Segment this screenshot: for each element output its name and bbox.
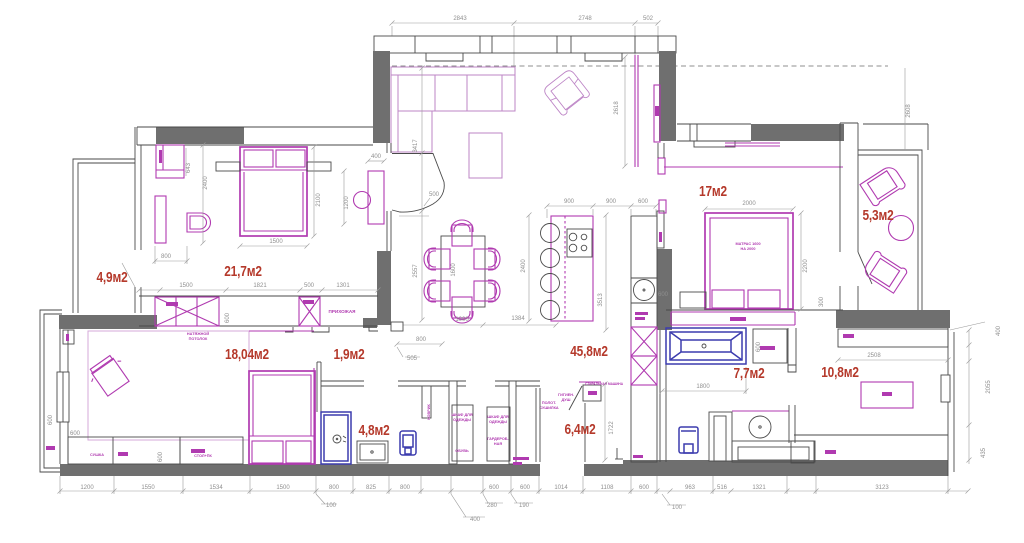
svg-text:2557: 2557: [413, 264, 419, 278]
svg-text:1722: 1722: [609, 421, 615, 435]
svg-text:1500: 1500: [179, 283, 193, 289]
svg-text:400: 400: [996, 325, 1002, 336]
svg-text:ПОЛОТ.: ПОЛОТ.: [542, 401, 556, 405]
svg-text:7,7м2: 7,7м2: [733, 365, 764, 381]
svg-text:600: 600: [638, 199, 649, 205]
svg-text:ШКАФ ДЛЯ: ШКАФ ДЛЯ: [487, 415, 508, 419]
svg-text:2618: 2618: [614, 101, 620, 115]
svg-text:ПРИХОЖАЯ: ПРИХОЖАЯ: [329, 309, 356, 314]
svg-text:1550: 1550: [141, 485, 155, 491]
svg-text:5,3м2: 5,3м2: [862, 207, 893, 223]
svg-text:СУШКА: СУШКА: [90, 453, 104, 457]
svg-text:1600: 1600: [451, 263, 457, 277]
svg-text:500: 500: [429, 192, 440, 198]
svg-text:СТИРАЛЬНАЯ МАШИНА: СТИРАЛЬНАЯ МАШИНА: [585, 382, 624, 386]
svg-text:1800: 1800: [696, 384, 710, 390]
svg-text:17м2: 17м2: [699, 183, 727, 199]
svg-text:1821: 1821: [253, 283, 267, 289]
svg-text:2100: 2100: [316, 193, 322, 207]
svg-text:КОВРИК: КОВРИК: [427, 404, 431, 420]
svg-text:2748: 2748: [578, 16, 592, 22]
svg-text:600: 600: [639, 485, 650, 491]
svg-text:ОДЕЖДЫ: ОДЕЖДЫ: [489, 420, 507, 424]
svg-text:1200: 1200: [344, 196, 350, 210]
svg-text:ШКАФ ДЛЯ: ШКАФ ДЛЯ: [451, 413, 472, 417]
svg-text:502: 502: [643, 16, 654, 22]
svg-text:3123: 3123: [875, 485, 889, 491]
svg-text:1200: 1200: [80, 485, 94, 491]
svg-text:963: 963: [685, 485, 696, 491]
svg-text:1321: 1321: [752, 485, 766, 491]
svg-text:2055: 2055: [986, 380, 992, 394]
svg-text:ОДЕЖДЫ: ОДЕЖДЫ: [453, 418, 471, 422]
svg-text:643: 643: [186, 162, 192, 173]
svg-text:400: 400: [371, 154, 382, 160]
svg-text:2000: 2000: [742, 201, 756, 207]
svg-text:516: 516: [717, 485, 728, 491]
svg-text:800: 800: [400, 485, 411, 491]
svg-text:2400: 2400: [203, 176, 209, 190]
svg-text:900: 900: [564, 199, 575, 205]
svg-text:1108: 1108: [601, 485, 615, 491]
svg-text:435: 435: [981, 447, 987, 458]
svg-text:10,8м2: 10,8м2: [821, 364, 859, 380]
svg-text:1500: 1500: [276, 485, 290, 491]
svg-text:1534: 1534: [209, 485, 223, 491]
svg-text:4,8м2: 4,8м2: [358, 422, 389, 438]
svg-text:ДУШ: ДУШ: [562, 398, 571, 402]
svg-text:825: 825: [366, 485, 377, 491]
svg-text:600: 600: [756, 341, 762, 352]
svg-text:МАТРАС 1600: МАТРАС 1600: [735, 242, 760, 246]
svg-text:СУШИЛКА: СУШИЛКА: [539, 406, 559, 410]
svg-text:1000: 1000: [455, 317, 469, 323]
svg-text:100: 100: [672, 505, 683, 511]
svg-text:3513: 3513: [598, 293, 604, 307]
svg-text:500: 500: [304, 283, 315, 289]
svg-text:280: 280: [487, 503, 498, 509]
svg-text:1301: 1301: [336, 283, 350, 289]
svg-text:4,9м2: 4,9м2: [96, 269, 127, 285]
svg-text:1384: 1384: [511, 316, 525, 322]
svg-text:1014: 1014: [554, 485, 568, 491]
svg-text:НАТЯЖНОЙ: НАТЯЖНОЙ: [187, 332, 209, 336]
svg-text:900: 900: [606, 199, 617, 205]
svg-text:800: 800: [416, 337, 427, 343]
svg-text:НАЯ: НАЯ: [494, 442, 502, 446]
svg-text:18,04м2: 18,04м2: [225, 346, 269, 362]
svg-text:ГАРДЕРОБ-: ГАРДЕРОБ-: [487, 437, 509, 441]
svg-text:600: 600: [48, 414, 54, 425]
svg-text:НА 2000: НА 2000: [741, 247, 756, 251]
svg-text:21,7м2: 21,7м2: [224, 263, 262, 279]
svg-text:ПОТОЛОК: ПОТОЛОК: [189, 337, 208, 341]
svg-text:ГИГИЕН.: ГИГИЕН.: [558, 393, 574, 397]
svg-text:600: 600: [225, 312, 231, 323]
svg-text:СТОЛ+ПК: СТОЛ+ПК: [194, 454, 212, 458]
svg-text:ОБУВЬ: ОБУВЬ: [455, 449, 469, 453]
svg-text:2508: 2508: [867, 353, 881, 359]
svg-text:800: 800: [161, 254, 172, 260]
svg-text:3417: 3417: [413, 139, 419, 153]
svg-text:600: 600: [489, 485, 500, 491]
svg-text:600: 600: [658, 292, 669, 298]
svg-text:300: 300: [819, 296, 825, 307]
svg-text:2608: 2608: [906, 104, 912, 118]
svg-text:2400: 2400: [521, 259, 527, 273]
svg-text:2843: 2843: [453, 16, 467, 22]
svg-text:1500: 1500: [269, 239, 283, 245]
svg-text:6,4м2: 6,4м2: [564, 421, 595, 437]
svg-text:45,8м2: 45,8м2: [570, 343, 608, 359]
svg-text:600: 600: [70, 431, 81, 437]
svg-text:190: 190: [519, 503, 530, 509]
svg-text:400: 400: [470, 517, 481, 523]
svg-text:800: 800: [329, 485, 340, 491]
svg-text:1,9м2: 1,9м2: [333, 346, 364, 362]
svg-text:600: 600: [520, 485, 531, 491]
svg-text:600: 600: [158, 451, 164, 462]
svg-text:2200: 2200: [803, 259, 809, 273]
